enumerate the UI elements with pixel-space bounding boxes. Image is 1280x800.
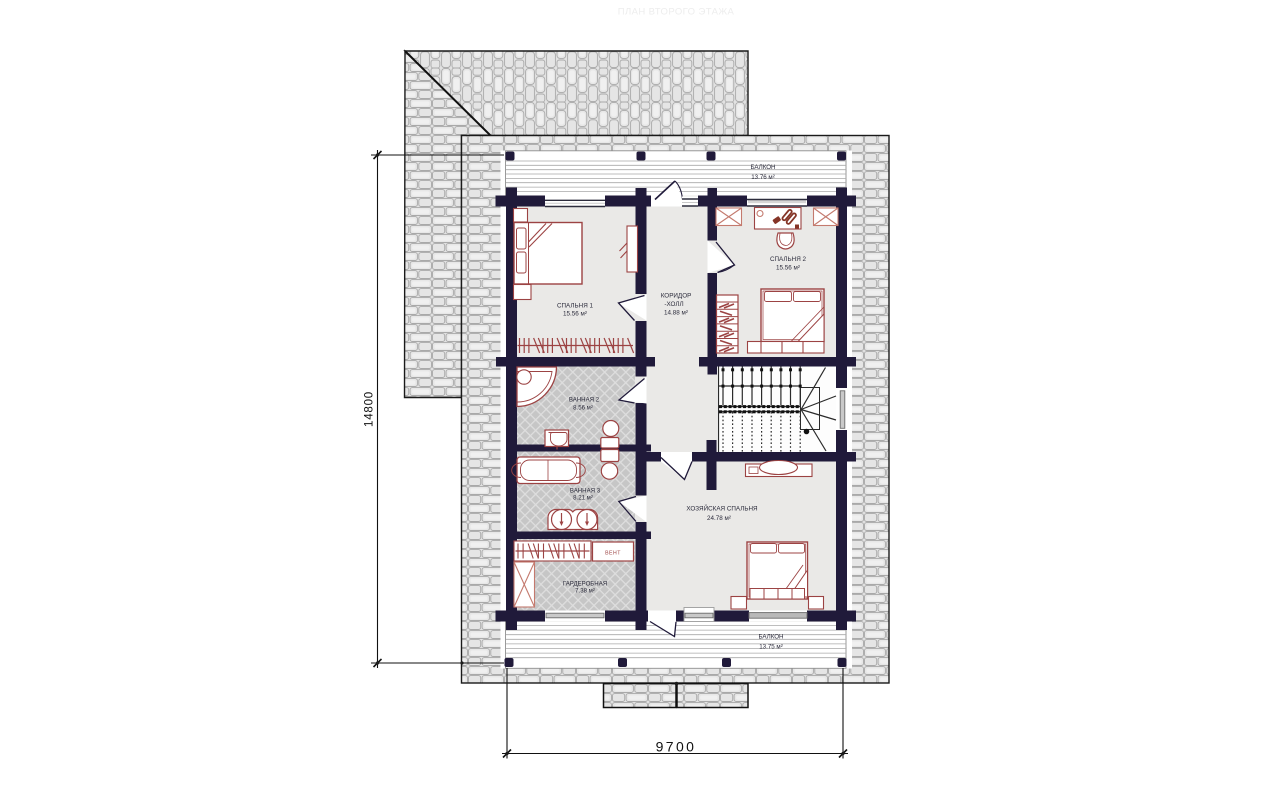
svg-text:8.21 м²: 8.21 м² bbox=[573, 495, 593, 502]
svg-text:СПАЛЬНЯ 1: СПАЛЬНЯ 1 bbox=[557, 303, 594, 310]
svg-text:14800: 14800 bbox=[364, 391, 376, 427]
svg-text:7.38 м²: 7.38 м² bbox=[575, 588, 595, 595]
svg-text:КОРИДОР: КОРИДОР bbox=[661, 293, 692, 300]
svg-text:8.56 м²: 8.56 м² bbox=[573, 405, 593, 412]
svg-text:24.78 м²: 24.78 м² bbox=[707, 515, 731, 522]
svg-text:ВЕНТ: ВЕНТ bbox=[605, 551, 621, 557]
svg-text:15.56 м²: 15.56 м² bbox=[563, 311, 587, 318]
svg-text:БАЛКОН: БАЛКОН bbox=[750, 164, 775, 171]
svg-text:13.76 м²: 13.76 м² bbox=[751, 174, 775, 181]
svg-text:15.56 м²: 15.56 м² bbox=[776, 265, 800, 272]
svg-text:БАЛКОН: БАЛКОН bbox=[758, 634, 783, 641]
svg-text:-ХОЛЛ: -ХОЛЛ bbox=[664, 301, 683, 308]
svg-text:9700: 9700 bbox=[656, 739, 697, 755]
svg-text:ГАРДЕРОБНАЯ: ГАРДЕРОБНАЯ bbox=[563, 581, 607, 588]
svg-text:ВАННАЯ 2: ВАННАЯ 2 bbox=[569, 397, 600, 404]
svg-text:ХОЗЯЙСКАЯ СПАЛЬНЯ: ХОЗЯЙСКАЯ СПАЛЬНЯ bbox=[686, 504, 758, 513]
svg-text:СПАЛЬНЯ 2: СПАЛЬНЯ 2 bbox=[770, 256, 807, 263]
svg-text:ВАННАЯ 3: ВАННАЯ 3 bbox=[570, 488, 601, 495]
svg-text:ПЛАН ВТОРОГО ЭТАЖА: ПЛАН ВТОРОГО ЭТАЖА bbox=[618, 7, 735, 18]
svg-text:14.88 м²: 14.88 м² bbox=[664, 310, 688, 317]
svg-text:13.75 м²: 13.75 м² bbox=[759, 644, 783, 651]
